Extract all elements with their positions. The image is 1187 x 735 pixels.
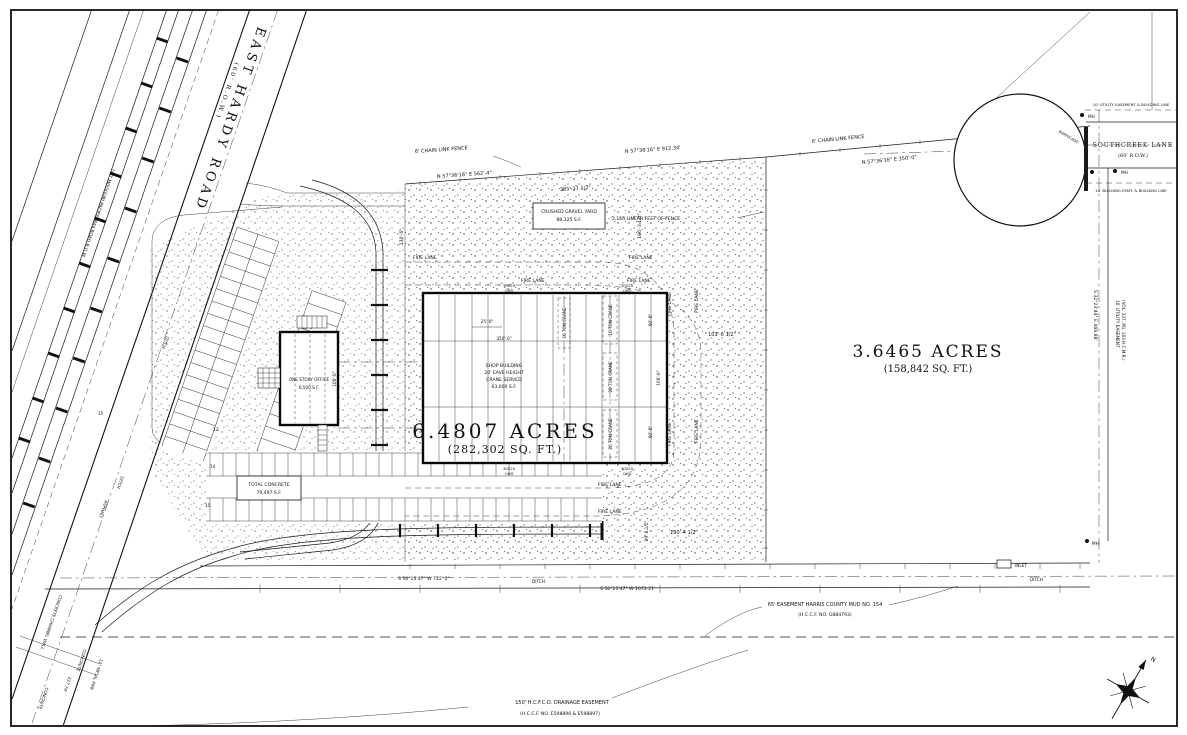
gravel-label-line2: 88,325 S.F. — [556, 217, 581, 223]
dim-130: 130'-6" — [399, 229, 405, 246]
site-plan-drawing: EAST HARDY ROAD (60' R.O.W.) 100' MISSOU… — [0, 0, 1187, 735]
mh-label-2: MH — [1121, 170, 1128, 175]
dim-190: 190'-4 1/2" — [670, 530, 698, 536]
shop-label-line3: CRANE SERVED — [486, 377, 522, 383]
fire-lane-label: FIRE LANE — [694, 419, 700, 443]
main-parcel-acres: 6.4807 ACRES — [412, 419, 597, 443]
total-concrete-label: TOTAL CONCRETE 79,497 S.F. — [237, 476, 301, 500]
crane-label-20ton: 20 TON CRANE — [608, 418, 613, 450]
dim-25: 25'-0" — [481, 319, 494, 324]
bearing-south-1: S 56°15'47" W 722'-2" — [398, 576, 450, 582]
fire-lane-label: FIRE LANE — [413, 255, 437, 261]
ohd-label: OHD — [505, 288, 514, 293]
ohd-label: OHD — [623, 471, 632, 476]
inlet-label: INLET — [1015, 563, 1027, 568]
dim-100: 100'-0" — [332, 371, 337, 386]
mh-label-1: MH — [1088, 114, 1095, 119]
road-label-southcreek: SOUTHCREEK LANE — [1093, 142, 1174, 149]
dim-60a: 60'-0" — [648, 314, 653, 327]
building-line-label: 16' BUILDING ESMT. & BUILDING LINE — [1095, 188, 1167, 193]
ditch-label-1: DITCH — [532, 579, 545, 584]
fire-lane-label: FIRE LANE — [521, 278, 545, 284]
crane-label-10ton: 10 TON CRANE — [562, 307, 567, 339]
east-parcel-acres: 3.6465 ACRES — [852, 342, 1003, 362]
office-label-line2: 6,500 S.F. — [299, 385, 319, 390]
cul-de-sac — [954, 94, 1086, 226]
east-parcel-sqft: (158,842 SQ. FT.) — [884, 364, 973, 375]
crane-label-10ton: 10 TON CRANE — [608, 304, 613, 336]
dim-160: 160'-0" — [656, 370, 661, 385]
parking-count-14: 14 — [210, 464, 216, 469]
site-plan-sheet: EAST HARDY ROAD (60' R.O.W.) 100' MISSOU… — [0, 0, 1187, 735]
fire-lane-label: FIRE LANE — [598, 482, 622, 488]
dim-350: 350'-0" — [496, 336, 511, 341]
drainage-easement-line1: 150' H.C.F.C.D. DRAINAGE EASEMENT — [515, 700, 609, 706]
shop-label-line2: 20' EAVE HEIGHT — [484, 370, 524, 376]
bearing-south-2: S 56°15'47" W 1072.21' — [600, 586, 655, 592]
parking-count-13: 13 — [213, 427, 219, 432]
barricade-bar — [1084, 127, 1088, 191]
mud-easement-line1: 65' EASEMENT HARRIS COUNTY MUD NO. 154 — [768, 602, 883, 608]
office-label-line1: ONE STORY OFFICE — [289, 377, 330, 382]
parking-count-15a: 15 — [205, 503, 211, 508]
bearing-east-1: S 32°23'44" E 469.88' — [1092, 290, 1098, 341]
concrete-label-line2: 79,497 S.F. — [256, 490, 281, 496]
utility-top-label: 10' UTILITY EASEMENT & BUILDING LINE — [1093, 102, 1170, 107]
ohd-label: OHD — [623, 288, 632, 293]
crane-label-20ton: 20 TON CRANE — [608, 361, 613, 393]
dim-99: 99'-8 1/2" — [644, 521, 649, 542]
shop-label-line4: 63,000 S.F. — [491, 384, 516, 390]
utility-easement-r1: 10' UTILITY EASEMENT — [1115, 300, 1120, 348]
fence-total-label: 2,154 LINEAR FEET OF FENCE — [612, 216, 680, 222]
drainage-easement-line2: (H.C.C.F. NO. E598896 & E598897) — [520, 711, 600, 717]
mh-label-3: MH — [1092, 541, 1099, 546]
dim-101: 101'-6 1/2" — [708, 332, 736, 338]
ohd-label: OHD — [505, 471, 514, 476]
shop-label-line1: SHOP BUILDING — [486, 363, 523, 369]
main-parcel-sqft: (282,302 SQ. FT.) — [448, 443, 562, 456]
parking-count-15b: 15 — [98, 411, 104, 416]
mud-easement-line2: (H.C.C.F. NO. G884793) — [798, 612, 852, 618]
road-label-southcreek-row: (60' R.O.W.) — [1118, 152, 1148, 159]
concrete-label-line1: TOTAL CONCRETE — [247, 482, 289, 488]
fire-lane-label: FIRE LANE — [598, 509, 622, 515]
utility-easement-r2: (VOL. 327, PG. 103 H.C.M.R.) — [1121, 300, 1126, 361]
fire-lane-label: FIRE LANE — [694, 289, 700, 313]
gravel-yard-label: CRUSHED GRAVEL YARD 88,325 S.F. — [533, 203, 605, 229]
fire-lane-label: FIRE LANE — [629, 255, 653, 261]
ditch-label-2: DITCH — [1030, 577, 1043, 582]
dim-196: 196'-3 1/2" — [637, 213, 643, 239]
gravel-label-line1: CRUSHED GRAVEL YARD — [541, 209, 597, 215]
dim-60b: 60'-0" — [648, 426, 653, 439]
